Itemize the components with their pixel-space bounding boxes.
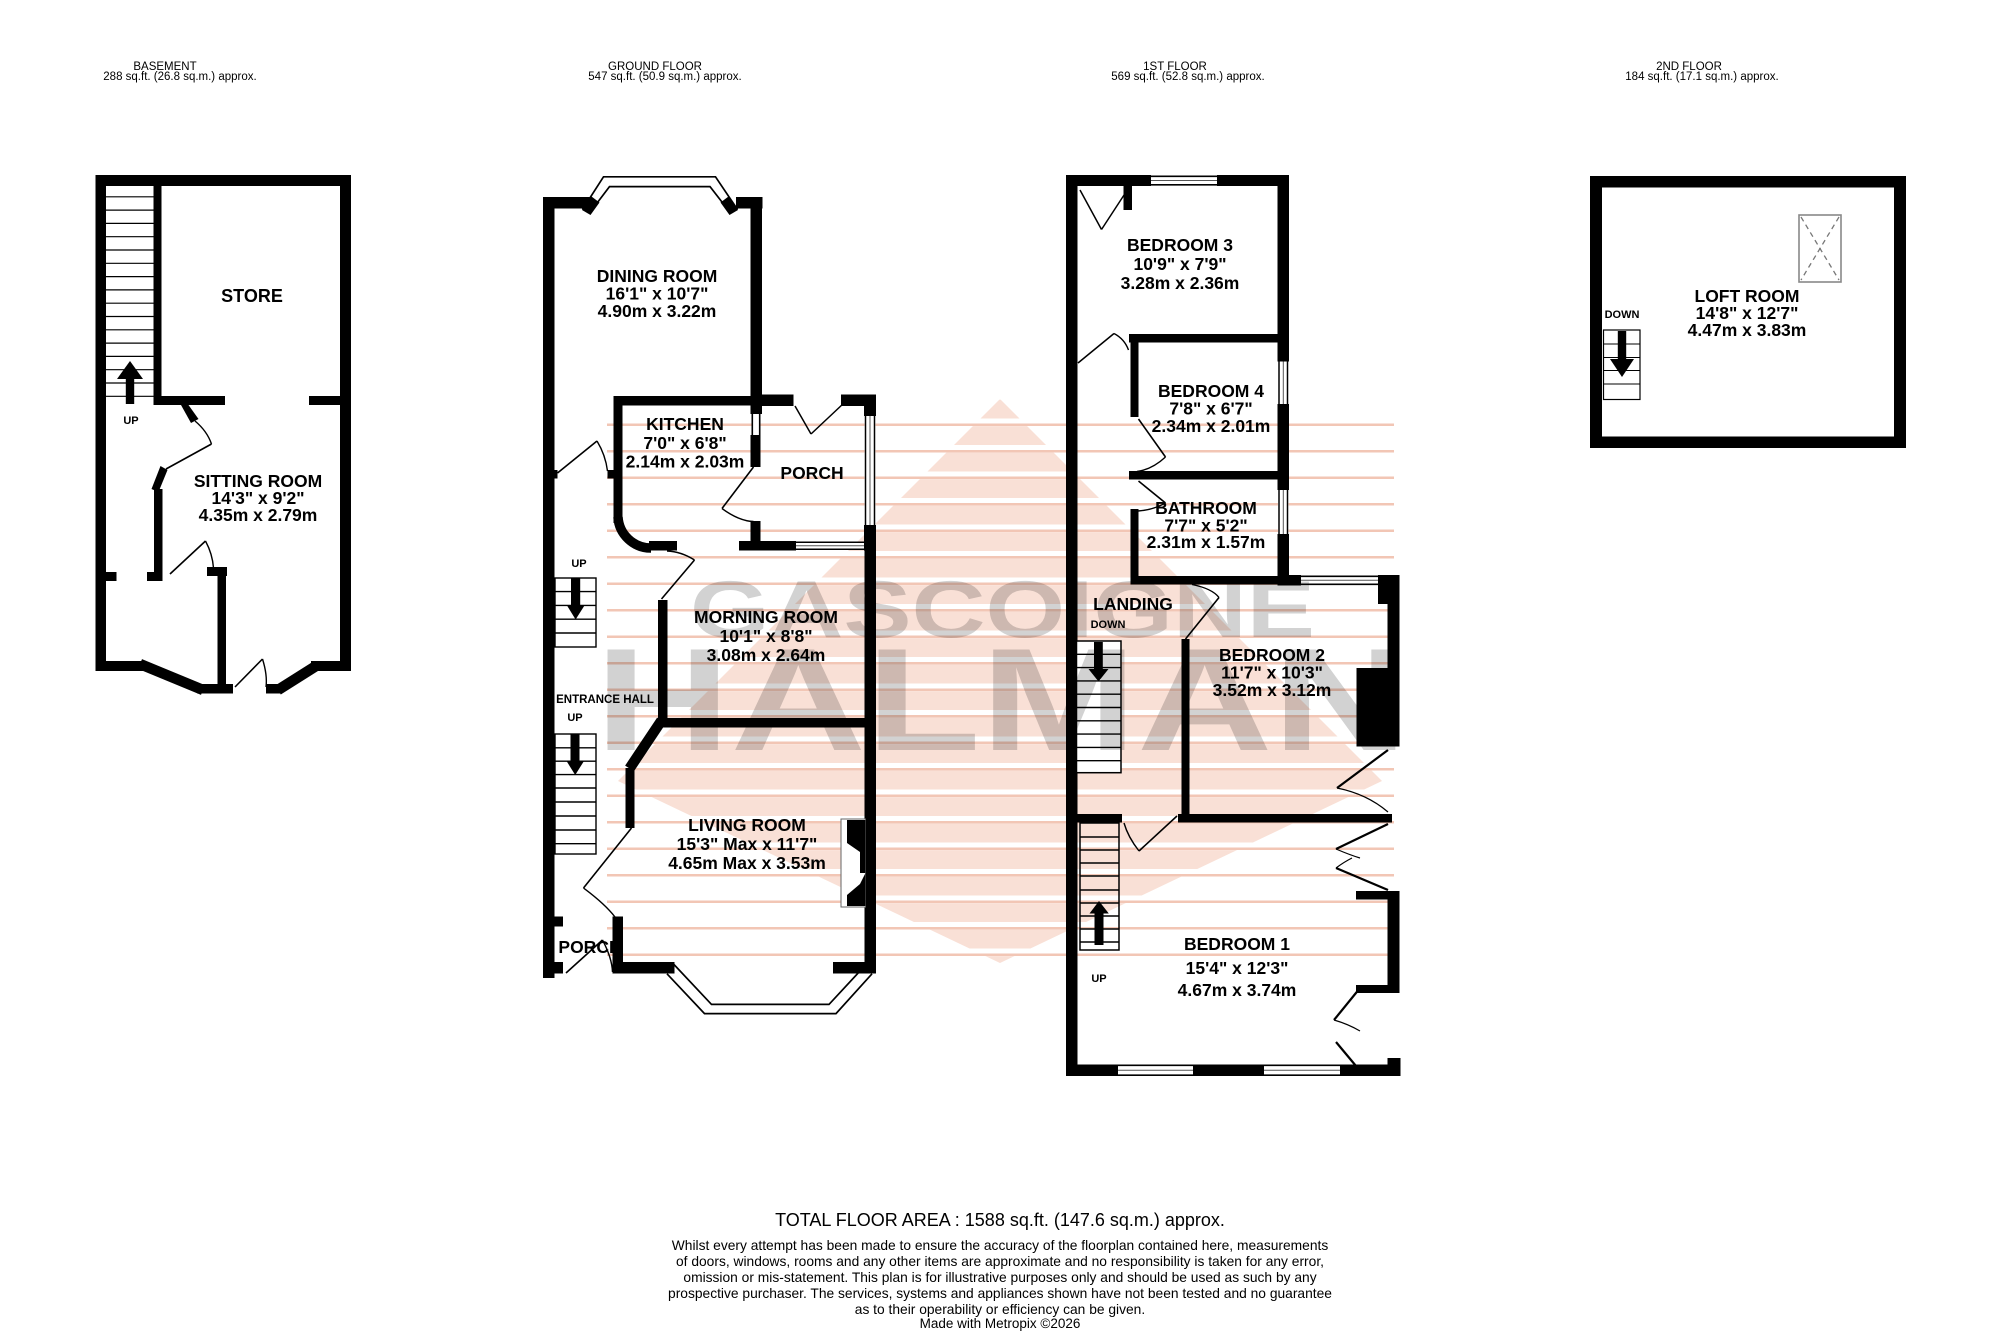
svg-text:STORE: STORE xyxy=(221,286,283,306)
svg-text:547 sq.ft. (50.9 sq.m.) approx: 547 sq.ft. (50.9 sq.m.) approx. xyxy=(588,71,741,83)
svg-text:4.35m x 2.79m: 4.35m x 2.79m xyxy=(199,505,318,525)
svg-text:omission or mis-statement. Thi: omission or mis-statement. This plan is … xyxy=(683,1270,1316,1285)
svg-text:BEDROOM 1: BEDROOM 1 xyxy=(1184,934,1290,954)
svg-text:BEDROOM 3: BEDROOM 3 xyxy=(1127,235,1233,255)
svg-text:2.34m x 2.01m: 2.34m x 2.01m xyxy=(1152,416,1271,436)
svg-text:569 sq.ft. (52.8 sq.m.) approx: 569 sq.ft. (52.8 sq.m.) approx. xyxy=(1111,71,1264,83)
svg-text:UP: UP xyxy=(571,558,586,570)
svg-text:7'0" x 6'8": 7'0" x 6'8" xyxy=(643,433,726,453)
svg-text:TOTAL FLOOR AREA : 1588 sq.ft.: TOTAL FLOOR AREA : 1588 sq.ft. (147.6 sq… xyxy=(775,1210,1225,1230)
svg-text:Made with Metropix ©2026: Made with Metropix ©2026 xyxy=(920,1316,1081,1331)
svg-text:2.14m x 2.03m: 2.14m x 2.03m xyxy=(626,452,745,472)
svg-text:10'9" x 7'9": 10'9" x 7'9" xyxy=(1133,254,1226,274)
svg-text:HALMAN: HALMAN xyxy=(595,618,1408,781)
svg-text:2.31m x 1.57m: 2.31m x 1.57m xyxy=(1147,532,1266,552)
svg-text:Whilst every attempt has been: Whilst every attempt has been made to en… xyxy=(672,1238,1329,1253)
svg-text:4.90m x 3.22m: 4.90m x 3.22m xyxy=(598,301,717,321)
svg-text:as to their operability or eff: as to their operability or efficiency ca… xyxy=(855,1302,1145,1317)
svg-text:UP: UP xyxy=(1091,973,1106,985)
svg-text:184 sq.ft. (17.1 sq.m.) approx: 184 sq.ft. (17.1 sq.m.) approx. xyxy=(1625,71,1778,83)
svg-text:UP: UP xyxy=(567,712,582,724)
svg-text:4.65m Max x 3.53m: 4.65m Max x 3.53m xyxy=(668,853,826,873)
svg-text:LIVING ROOM: LIVING ROOM xyxy=(688,815,806,835)
svg-text:15'3" Max x 11'7": 15'3" Max x 11'7" xyxy=(677,834,818,854)
svg-text:288 sq.ft. (26.8 sq.m.) approx: 288 sq.ft. (26.8 sq.m.) approx. xyxy=(103,71,256,83)
svg-text:4.67m x 3.74m: 4.67m x 3.74m xyxy=(1178,980,1297,1000)
svg-text:DOWN: DOWN xyxy=(1605,309,1640,321)
svg-text:PORCH: PORCH xyxy=(780,463,843,483)
svg-text:3.28m x 2.36m: 3.28m x 2.36m xyxy=(1121,273,1240,293)
svg-text:KITCHEN: KITCHEN xyxy=(646,414,724,434)
svg-text:PORCH: PORCH xyxy=(558,937,621,957)
svg-text:4.47m x 3.83m: 4.47m x 3.83m xyxy=(1688,320,1807,340)
svg-text:15'4" x 12'3": 15'4" x 12'3" xyxy=(1186,958,1289,978)
svg-text:of doors, windows, rooms and a: of doors, windows, rooms and any other i… xyxy=(676,1254,1324,1269)
svg-text:prospective purchaser. The ser: prospective purchaser. The services, sys… xyxy=(668,1286,1332,1301)
svg-text:UP: UP xyxy=(123,415,138,427)
